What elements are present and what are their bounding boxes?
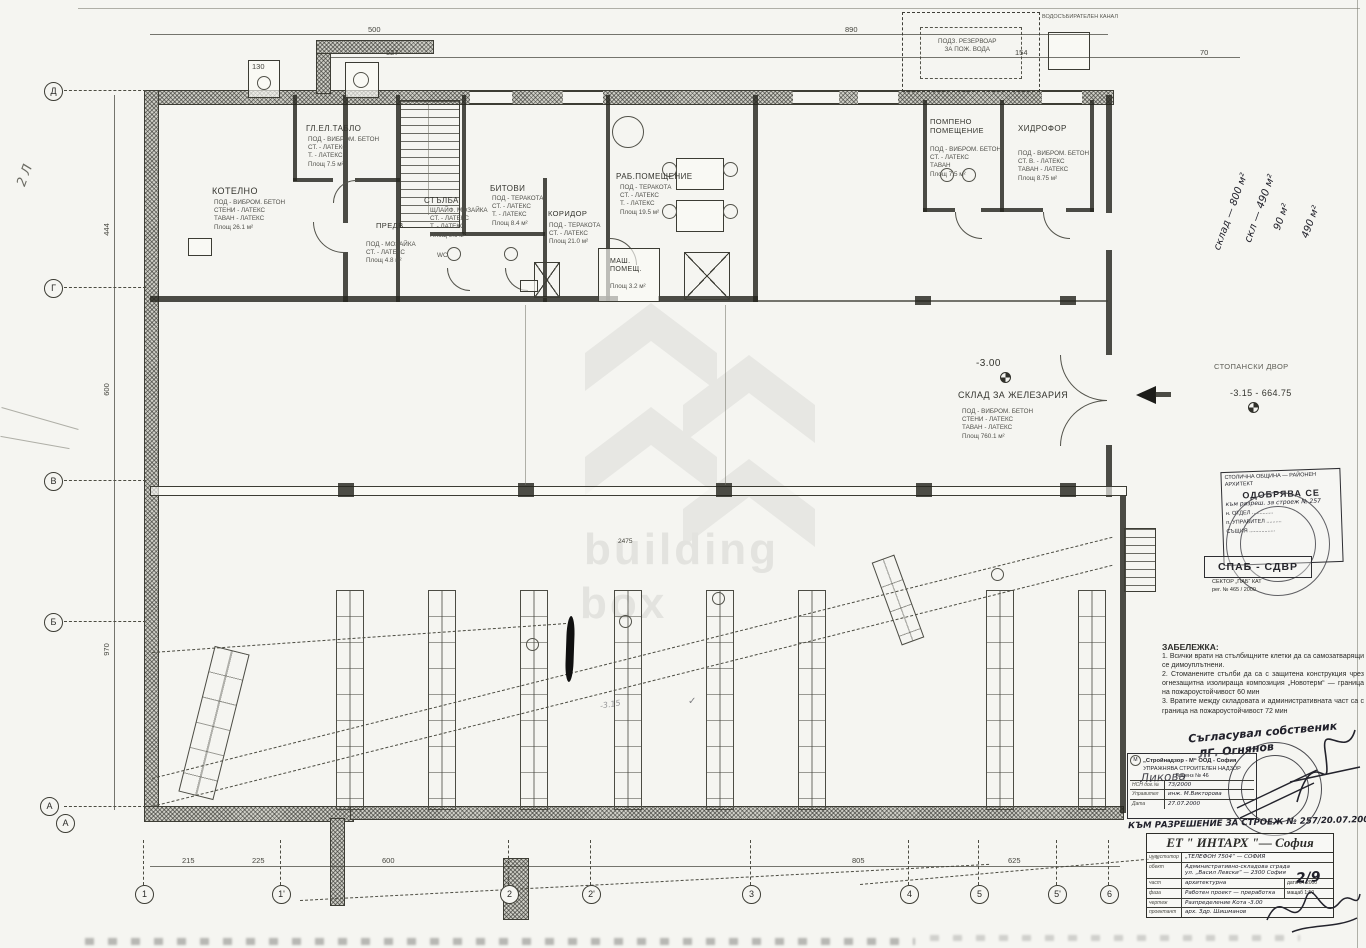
room-label-pompeno: ПОМПЕНО ПОМЕЩЕНИЕ <box>930 118 984 135</box>
storage-rack-5 <box>706 590 734 810</box>
wall-right-top <box>1106 95 1112 213</box>
staircase-entry-right <box>1124 528 1156 592</box>
title-block-company: ЕТ " ИНТАРХ "— София <box>1147 834 1333 853</box>
margin-scribble-line-1 <box>1 407 78 430</box>
elevator-shaft <box>684 252 730 300</box>
axis-drop-1 <box>143 840 144 885</box>
beam-line-upper <box>758 300 1108 302</box>
wall-pump-west <box>923 100 927 212</box>
axis-bubble-bottom-7: 5 <box>970 885 989 904</box>
notes-title: ЗАБЕЛЕЖКА: <box>1162 642 1364 652</box>
window-top-1 <box>470 91 512 104</box>
rack-wheel-1 <box>526 638 539 651</box>
yard-label: СТОПАНСКИ ДВОР <box>1214 363 1289 372</box>
window-top-4 <box>858 91 898 104</box>
wc-fixture-2 <box>504 247 518 261</box>
floor-plan-scan: building box <box>0 0 1366 948</box>
room-label-hidrofor: ХИДРОФОР <box>1018 124 1067 133</box>
round-table <box>612 116 644 148</box>
wall-pump-south-b <box>981 208 1043 212</box>
room-spec-koridor: ПОД - ТЕРАКОТА СТ. - ЛАТЕКС Площ 21.0 м² <box>549 222 601 247</box>
chair-3 <box>723 162 738 177</box>
storage-rack-8 <box>1078 590 1106 810</box>
storage-rack-tilted-mid <box>872 555 925 646</box>
yard-level-text: -3.15 - 664.75 <box>1230 388 1292 398</box>
axis-drop-6 <box>908 840 909 885</box>
room-label-stalba: СТЪЛБА <box>424 196 459 205</box>
area-note-4: 490 м² <box>1300 204 1322 240</box>
tb-r2-label: обект <box>1147 863 1182 878</box>
axis-bubble-bottom-5: 3 <box>742 885 761 904</box>
wall-rab-east <box>753 95 758 302</box>
scan-top-edge-line <box>78 8 1360 9</box>
axis-drop-9 <box>1108 840 1109 885</box>
supervision-logo-icon: М <box>1130 755 1141 766</box>
axis-drop-3 <box>508 840 509 885</box>
storage-rack-6 <box>798 590 826 810</box>
entrance-arrow-tail <box>1155 392 1171 397</box>
dim-top-5: 70 <box>1200 48 1208 57</box>
wall-pump-south-a <box>923 208 955 212</box>
tb-r4-label: фаза <box>1147 889 1182 898</box>
dim-bottom-4: 805 <box>852 856 865 865</box>
signature-architect <box>1262 880 1362 940</box>
pencil-check-mark: ✓ <box>688 696 696 707</box>
column-upper-1 <box>915 296 931 305</box>
dim-top-3: 527 <box>386 48 399 57</box>
rack-wheel-3 <box>712 592 725 605</box>
rack-wheel-2 <box>619 615 632 628</box>
axis-bubble-bottom-3: 2 <box>500 885 519 904</box>
spab-stamp: СПАБ - СДВР <box>1204 556 1312 578</box>
column-long-3 <box>716 483 732 497</box>
dim-left-3: 970 <box>102 643 111 656</box>
watermark-text-line1: building <box>584 528 779 572</box>
room-spec-predv: ПОД - МОЗАЙКА СТ. - ЛАТЕКС Площ 4.8 м² <box>366 241 416 266</box>
canal-box <box>1048 32 1090 70</box>
area-note-3: 90 м² <box>1272 202 1292 232</box>
room-label-kotelno: КОТЕЛНО <box>212 186 258 196</box>
main-gate-arc-lower <box>1060 400 1107 446</box>
note-item-2: 2. Стоманените стълби да са с защитена к… <box>1162 670 1364 697</box>
wall-pump-south-c <box>1066 208 1094 212</box>
canal-label: ВОДОСЪБИРАТЕЛЕН КАНАЛ <box>1042 14 1152 21</box>
room-spec-mash: Площ 3.2 м² <box>610 283 646 291</box>
axis-bubble-left-5: А <box>40 797 59 816</box>
wc-sink <box>520 280 538 292</box>
supervision-r2-label: Управител <box>1130 790 1165 799</box>
axis-line-v <box>64 480 146 481</box>
axis-bubble-bottom-1: 1 <box>135 885 154 904</box>
room-spec-tablo: ПОД - ВИБРОМ. БЕТОН СТ. - ЛАТЕКС Т. - ЛА… <box>308 136 379 169</box>
room-spec-rab: ПОД - ТЕРАКОТА СТ. - ЛАТЕКС Т. - ЛАТЕКС … <box>620 184 672 217</box>
level-mark-main-text: -3.00 <box>976 358 1001 370</box>
axis-bubble-bottom-9: 6 <box>1100 885 1119 904</box>
axis-drop-2 <box>280 840 281 885</box>
axis-line-d <box>64 90 146 91</box>
margin-scribble-line-2 <box>0 436 69 449</box>
level-mark-main-icon <box>1000 372 1011 383</box>
wall-exterior-left <box>144 90 159 822</box>
entrance-arrow-icon <box>1136 386 1156 404</box>
rack-wheel-4 <box>991 568 1004 581</box>
scan-noise-strip-1 <box>85 938 915 945</box>
machine-room-box <box>598 248 660 302</box>
axis-drop-5 <box>750 840 751 885</box>
tb-r1-value: „ТЕЛЕФОН 7504“ — СОФИЯ <box>1182 853 1333 862</box>
room-label-tablo: ГЛ.ЕЛ.ТАБЛО <box>306 124 361 133</box>
signature-seal-strike <box>1232 748 1322 832</box>
room-label-rab: РАБ.ПОМЕЩЕНИЕ <box>616 172 692 181</box>
window-top-5 <box>1042 91 1082 104</box>
wall-tablo-west <box>293 95 297 181</box>
wall-notch-horizontal <box>316 40 434 54</box>
approval-stamp-header: СТОЛИЧНА ОБЩИНА — РАЙОНЕН АРХИТЕКТ <box>1224 471 1336 489</box>
room-label-sklad: СКЛАД ЗА ЖЕЛЕЗАРИЯ <box>958 390 1068 400</box>
reservoir-label: ПОДЗ. РЕЗЕРВОАР ЗА ПОЖ. ВОДА <box>938 38 996 54</box>
dim-line-top-1 <box>150 34 1108 35</box>
spab-stamp-line2: рег. № 465 / 2000 <box>1212 587 1256 594</box>
dim-top-2: 890 <box>845 25 858 34</box>
dim-left-2: 600 <box>102 383 111 396</box>
window-top-3 <box>793 91 839 104</box>
room-spec-hidrofor: ПОД - ВИБРОМ. БЕТОН СТ. В. - ЛАТЕКС ТАВА… <box>1018 150 1089 183</box>
dim-line-bottom <box>150 866 1120 867</box>
wall-exterior-bottom-left <box>144 806 354 822</box>
tb-r5-label: чертеж <box>1147 899 1182 908</box>
wc-fixture-1 <box>447 247 461 261</box>
dim-mid-1: 2475 <box>618 538 632 545</box>
work-table-2 <box>676 200 724 232</box>
column-axis-line-2 <box>725 305 726 485</box>
note-item-3: 3. Вратите между складовата и администра… <box>1162 697 1364 715</box>
room-spec-pompeno: ПОД - ВИБРОМ. БЕТОН СТ. - ЛАТЕКС ТАВАН П… <box>930 146 1001 179</box>
room-label-mash: МАШ. ПОМЕЩ. <box>610 258 642 274</box>
roof-box-flue <box>353 72 369 88</box>
column-long-4 <box>916 483 932 497</box>
dim-top-4: 154 <box>1015 48 1028 57</box>
chair-4 <box>723 204 738 219</box>
column-axis-line-1 <box>525 305 526 485</box>
axis-bubble-bottom-8: 5' <box>1048 885 1067 904</box>
dim-bottom-5: 625 <box>1008 856 1021 865</box>
column-long-2 <box>518 483 534 497</box>
note-item-1: 1. Всички врати на стълбищните клетки да… <box>1162 652 1364 670</box>
tb-r1-label: инвеститор <box>1147 853 1182 862</box>
room-label-koridor: КОРИДОР <box>548 210 587 219</box>
storage-rack-tilted-left <box>178 646 249 800</box>
axis-line-a <box>64 806 146 807</box>
boiler-equipment <box>188 238 212 256</box>
axis-bubble-left-1: Д <box>44 82 63 101</box>
column-upper-2 <box>1060 296 1076 305</box>
axis-bubble-bottom-4: 2' <box>582 885 601 904</box>
dim-bottom-2: 225 <box>252 856 265 865</box>
axis-drop-4 <box>590 840 591 885</box>
dim-line-left <box>114 95 115 810</box>
yard-level-icon <box>1248 402 1259 413</box>
pump-door-arc <box>955 212 982 239</box>
wall-pump-east <box>1090 100 1094 212</box>
dim-left-1: 444 <box>102 223 111 236</box>
room-spec-bitovi: ПОД - ТЕРАКОТА СТ. - ЛАТЕКС Т. - ЛАТЕКС … <box>492 195 544 228</box>
axis-bubble-left-3: В <box>44 472 63 491</box>
dim-bottom-3: 600 <box>382 856 395 865</box>
dim-bottom-1: 215 <box>182 856 195 865</box>
storage-rack-3 <box>520 590 548 810</box>
margin-scribble: 2 Л <box>14 163 36 189</box>
notes-block: ЗАБЕЛЕЖКА: 1. Всички врати на стълбищнит… <box>1162 642 1364 716</box>
storage-rack-7 <box>986 590 1014 810</box>
kotelno-door-arc <box>313 222 344 253</box>
room-spec-kotelno: ПОД - ВИБРОМ. БЕТОН СТЕНИ - ЛАТЕКС ТАВАН… <box>214 199 285 232</box>
column-long-1 <box>338 483 354 497</box>
tb-r6-label: проектант <box>1147 908 1182 917</box>
axis-line-g <box>64 287 146 288</box>
storage-rack-2 <box>428 590 456 810</box>
window-top-2 <box>563 91 603 104</box>
buildingbox-logo-watermark <box>575 298 825 548</box>
room-label-wc: WC <box>437 252 448 260</box>
room-label-bitovi: БИТОВИ <box>490 184 525 193</box>
tb-r3-label: част <box>1147 879 1182 888</box>
spab-stamp-title: СПАБ - СДВР <box>1218 561 1298 573</box>
scan-noise-strip-2 <box>930 935 1300 941</box>
room-spec-stalba: ЩЛАЙФ. МОЗАЙКА СТ. - ЛАТЕКС Т. - ЛАТЕКС … <box>430 207 488 240</box>
axis-line-b <box>64 621 146 622</box>
tablo-door-arc <box>333 180 356 203</box>
wc-door-arc-1 <box>447 268 470 291</box>
wall-right-mid <box>1106 250 1112 355</box>
area-note-2: скл — 490 м² <box>1242 173 1278 244</box>
axis-bubble-left-4: Б <box>44 613 63 632</box>
wall-interior-long <box>150 486 1127 496</box>
chimney-flue <box>257 76 271 90</box>
dim-line-top-2 <box>330 57 1240 58</box>
axis-bubble-bottom-2: 1' <box>272 885 291 904</box>
column-long-5 <box>1060 483 1076 497</box>
hidrofor-door-arc <box>1043 212 1070 239</box>
storage-rack-1 <box>336 590 364 810</box>
axis-bubble-left-6: А <box>56 814 75 833</box>
dim-top-1: 500 <box>368 25 381 34</box>
room-label-predv: ПРЕДВ. <box>376 222 406 231</box>
spab-stamp-line1: СЕКТОР „ПАБ“ КАТ <box>1212 579 1262 586</box>
wall-tablo-south-a <box>293 178 333 182</box>
supervision-r4-label: Дата <box>1130 800 1165 809</box>
axis-drop-8 <box>1056 840 1057 885</box>
axis-bubble-left-2: Г <box>44 279 63 298</box>
chimney-dim-label: 130 <box>252 62 265 71</box>
axis-bubble-bottom-6: 4 <box>900 885 919 904</box>
supervision-overwrite: Ликова <box>1140 769 1187 785</box>
wall-kotelno-east-b <box>343 252 348 302</box>
wall-stub-below-1 <box>330 818 345 906</box>
room-spec-sklad: ПОД - ВИБРОМ. БЕТОН СТЕНИ - ЛАТЕКС ТАВАН… <box>962 408 1033 441</box>
wall-tablo-south-b <box>355 178 401 182</box>
supervision-company: „Стройнадзор - М“ ООД - София <box>1143 758 1236 764</box>
axis-drop-7 <box>978 840 979 885</box>
